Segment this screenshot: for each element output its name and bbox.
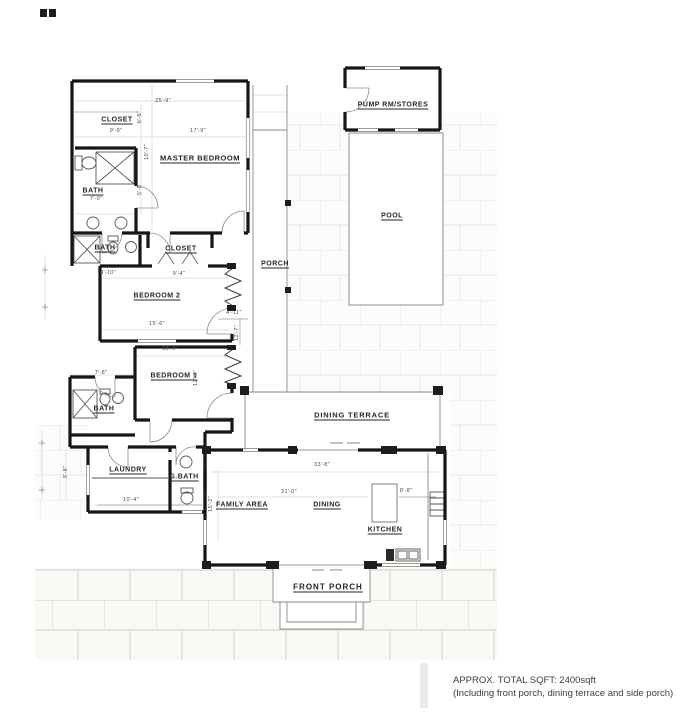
room-label-closet-2: CLOSET [165, 246, 196, 253]
room-label-bath-2: BATH [95, 245, 116, 252]
dimension-label: 9'-4" [173, 271, 185, 277]
room-label-dining: DINING [313, 502, 341, 509]
room-label-kitchen: KITCHEN [368, 527, 403, 534]
room-label-front-porch: FRONT PORCH [293, 583, 363, 592]
sqft-note: APPROX. TOTAL SQFT: 2400sqft (Including … [453, 674, 673, 700]
room-label-porch: PORCH [261, 261, 289, 268]
floor-plan-drawing [0, 0, 680, 712]
room-label-master-bedroom: MASTER BEDROOM [160, 154, 240, 163]
dimension-label: 4'-11" [226, 310, 241, 316]
room-label-bedroom-1: BEDROOM 1 [151, 373, 198, 380]
room-label-bath-1: BATH [94, 406, 115, 413]
room-label-bath-master: BATH [83, 188, 104, 195]
dimension-label: 6'-6" [137, 111, 143, 123]
dimension-label: 13'-9" [162, 346, 178, 352]
room-label-family-area: FAMILY AREA [216, 502, 268, 509]
dimension-label: 4'-10" [100, 270, 116, 276]
dimension-label: 10'-7" [144, 144, 150, 160]
dimension-label: 17'-9" [190, 128, 206, 134]
dimension-label: 9'-9" [110, 128, 122, 134]
dimension-label: 12'-7" [234, 325, 240, 341]
sqft-note-line1: APPROX. TOTAL SQFT: 2400sqft [453, 674, 673, 687]
sqft-note-line2: (Including front porch, dining terrace a… [453, 687, 673, 700]
room-label-closet-master: CLOSET [101, 117, 132, 124]
room-label-bedroom-2: BEDROOM 2 [134, 293, 181, 300]
room-label-pump-room: PUMP RM/STORES [358, 102, 429, 109]
floor-plan: CLOSETMASTER BEDROOMBATHBATHCLOSETBEDROO… [0, 0, 680, 712]
room-label-pool: POOL [381, 213, 403, 220]
room-label-laundry: LAUNDRY [109, 467, 146, 474]
dimension-label: 33'-8" [314, 462, 330, 468]
kitchen-range [386, 549, 394, 561]
dimension-label: 7'-8" [95, 370, 107, 376]
room-label-g-bath: G.BATH [169, 474, 198, 481]
dimension-label: 5'-8" [63, 466, 69, 478]
dimension-label: 8'-8" [400, 488, 412, 494]
folding-doors [158, 252, 241, 385]
dimension-label: 12'-0" [193, 370, 199, 386]
dimension-label: 15'-2" [208, 496, 214, 512]
dimension-label: 21'-0" [281, 489, 297, 495]
room-label-dining-terrace: DINING TERRACE [314, 411, 390, 420]
dimension-label: 10'-4" [123, 497, 139, 503]
dimension-label: 15'-6" [149, 321, 165, 327]
dimension-label: 7'-0" [90, 196, 102, 202]
dimension-label: 25'-9" [155, 98, 171, 104]
dimension-label: 5'-8" [137, 183, 143, 195]
